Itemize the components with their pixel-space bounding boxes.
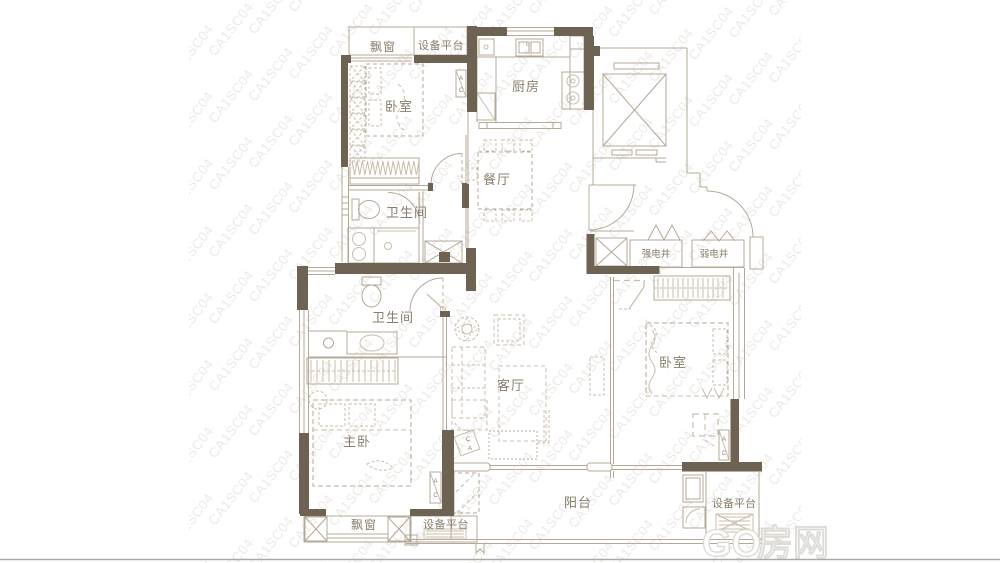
svg-text:A: A <box>468 446 472 452</box>
svg-text:飘窗: 飘窗 <box>351 518 377 532</box>
svg-text:C: C <box>722 451 727 457</box>
svg-text:客厅: 客厅 <box>497 378 525 393</box>
svg-text:卧室: 卧室 <box>385 99 413 114</box>
svg-text:A: A <box>433 479 437 485</box>
svg-text:强电井: 强电井 <box>642 248 671 260</box>
svg-text:卫生间: 卫生间 <box>386 205 428 220</box>
svg-text:C: C <box>466 437 471 443</box>
svg-text:设备平台: 设备平台 <box>712 496 756 510</box>
svg-text:设备平台: 设备平台 <box>418 38 464 52</box>
svg-text:A: A <box>459 76 463 82</box>
svg-text:GO: GO <box>702 523 761 563</box>
svg-text:餐厅: 餐厅 <box>483 172 511 187</box>
svg-text:卧室: 卧室 <box>659 355 687 370</box>
svg-text:C: C <box>433 493 438 499</box>
svg-text:A: A <box>722 437 726 443</box>
svg-text:飘窗: 飘窗 <box>370 40 396 54</box>
svg-text:卫生间: 卫生间 <box>372 310 414 325</box>
svg-text:房网: 房网 <box>757 522 829 563</box>
svg-text:阳台: 阳台 <box>564 495 592 510</box>
svg-text:厨房: 厨房 <box>512 79 540 94</box>
svg-text:设备平台: 设备平台 <box>423 517 469 531</box>
svg-text:C: C <box>459 88 464 94</box>
svg-text:主卧: 主卧 <box>343 434 371 449</box>
svg-text:弱电井: 弱电井 <box>700 248 729 260</box>
